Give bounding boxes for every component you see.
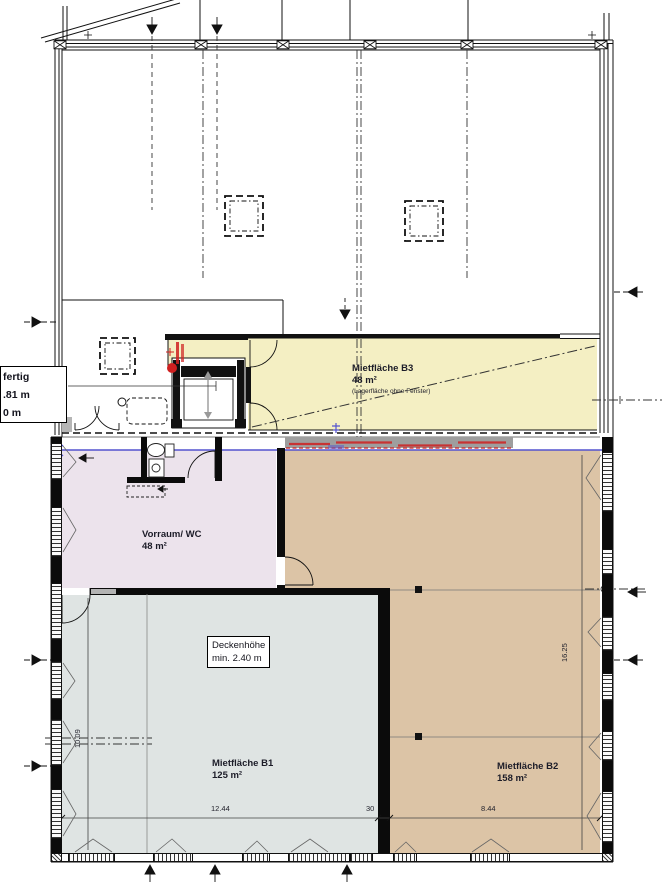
wall-segment bbox=[51, 700, 62, 719]
b2-label: Mietfläche B2 158 m² bbox=[497, 760, 558, 785]
window bbox=[602, 791, 613, 843]
ceiling-line-2: min. 2.40 m bbox=[212, 652, 265, 665]
wall-segment bbox=[51, 480, 62, 507]
window bbox=[602, 549, 613, 575]
window bbox=[470, 853, 510, 862]
wall-segment bbox=[51, 640, 62, 661]
b3-note: (Lagerfläche ohne Fenster) bbox=[352, 387, 430, 396]
window bbox=[242, 853, 270, 862]
ceiling-height-box: Deckenhöhe min. 2.40 m bbox=[207, 636, 270, 668]
b1-label: Mietfläche B1 125 m² bbox=[212, 757, 273, 782]
window bbox=[68, 853, 115, 862]
b2-name: Mietfläche B2 bbox=[497, 760, 558, 773]
vorraum-area: 48 m² bbox=[142, 541, 201, 553]
wall-segment bbox=[602, 437, 613, 452]
area-b1 bbox=[62, 594, 378, 853]
dim-b2-width: 8.44 bbox=[481, 804, 496, 813]
window bbox=[602, 452, 613, 512]
dim-wall: 30 bbox=[366, 804, 374, 813]
corner-post bbox=[51, 853, 62, 862]
floor-plan: fertig .81 m 0 m Mietfläche B3 48 m² (La… bbox=[0, 0, 667, 896]
b1-area: 125 m² bbox=[212, 770, 273, 782]
level-line-3: 0 m bbox=[3, 404, 64, 422]
window bbox=[51, 661, 62, 700]
window bbox=[51, 443, 62, 480]
dim-b2-depth: 16.25 bbox=[560, 643, 569, 662]
wall-segment bbox=[602, 575, 613, 616]
wall-segment bbox=[602, 651, 613, 673]
wall-segment bbox=[602, 512, 613, 549]
window bbox=[393, 853, 417, 862]
window bbox=[153, 853, 193, 862]
top-wall-columns bbox=[54, 41, 607, 49]
b3-area: 48 m² bbox=[352, 375, 430, 387]
b2-area: 158 m² bbox=[497, 773, 558, 785]
b3-label: Mietfläche B3 48 m² (Lagerfläche ohne Fe… bbox=[352, 362, 430, 396]
wall-segment bbox=[51, 766, 62, 789]
level-line-1: fertig bbox=[3, 368, 64, 386]
wall-segment bbox=[602, 843, 613, 853]
plan-linework bbox=[0, 0, 667, 896]
finish-level-box: fertig .81 m 0 m bbox=[0, 366, 67, 423]
b3-name: Mietfläche B3 bbox=[352, 362, 430, 375]
window bbox=[602, 673, 613, 701]
window bbox=[288, 853, 350, 862]
window bbox=[350, 853, 373, 862]
dim-b1-width: 12.44 bbox=[211, 804, 230, 813]
window bbox=[51, 507, 62, 557]
wall-segment bbox=[602, 701, 613, 731]
window bbox=[602, 731, 613, 761]
wall-segment bbox=[51, 557, 62, 583]
dim-b1-depth: 10.09 bbox=[73, 729, 82, 748]
vorraum-name: Vorraum/ WC bbox=[142, 528, 201, 541]
b1-name: Mietfläche B1 bbox=[212, 757, 273, 770]
elevator bbox=[171, 358, 246, 428]
window bbox=[51, 789, 62, 839]
ceiling-line-1: Deckenhöhe bbox=[212, 639, 265, 652]
window bbox=[602, 616, 613, 651]
wall-segment bbox=[51, 839, 62, 853]
wall-segment bbox=[602, 761, 613, 791]
vorraum-label: Vorraum/ WC 48 m² bbox=[142, 528, 201, 553]
window bbox=[51, 719, 62, 766]
level-line-2: .81 m bbox=[3, 386, 64, 404]
area-vorraum bbox=[62, 450, 276, 588]
corner-post bbox=[602, 853, 613, 862]
window bbox=[51, 583, 62, 640]
